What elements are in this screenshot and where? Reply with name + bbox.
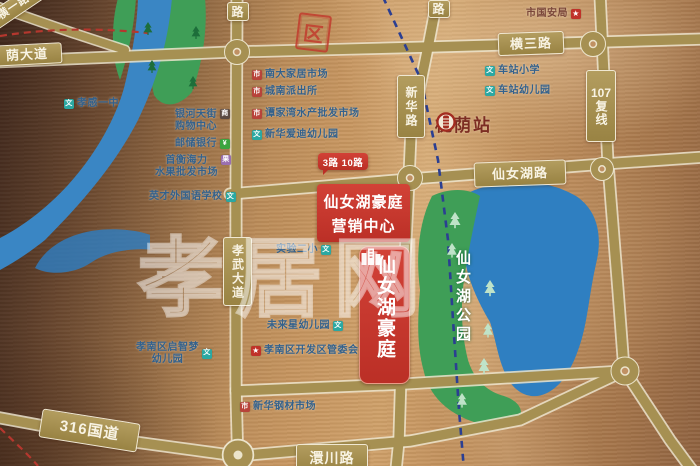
poi-yingcai-school: 英才外国语学校: [149, 191, 236, 203]
road-plate-107-number: 107: [591, 87, 611, 99]
poi-label: 城南派出所: [265, 86, 318, 98]
road-plate-yindadao: 荫大道: [0, 42, 63, 67]
poi-label: 新华钢材市场: [253, 401, 316, 413]
fruit-market-icon: [221, 155, 231, 165]
poi-label: 市国安局: [526, 8, 568, 20]
poi-shuiguo-market: 首衡海力水果批发市场: [155, 155, 231, 178]
poi-label: 谭家湾水产批发市场: [265, 108, 360, 120]
poi-chezhan-kindergarten: 车站幼儿园: [485, 85, 551, 97]
poi-label: 英才外国语学校: [149, 191, 223, 203]
poi-nanda-market: 南大家居市场: [252, 69, 328, 81]
poi-label: 车站幼儿园: [498, 85, 551, 97]
road-plate-lu-left: 路: [227, 2, 249, 21]
market-icon: [252, 70, 262, 80]
poi-label: 孝南区启智梦: [136, 342, 199, 354]
mall-icon: [220, 109, 230, 119]
poi-xiaogan-yizhong: 孝感一中: [64, 98, 119, 110]
road-plate-hengsan: 横三路: [498, 31, 565, 56]
boundary-dashed-red-bottom: [0, 428, 38, 466]
poi-guo-an-ju: 市国安局: [526, 8, 581, 20]
market-icon: [252, 109, 262, 119]
poi-qizhimeng-kindergarten: 孝南区启智梦幼儿园: [136, 342, 212, 365]
poi-label: 孝感一中: [77, 98, 119, 110]
poi-label2: 购物中心: [175, 121, 217, 133]
road-plate-lu-right: 路: [428, 0, 450, 18]
poi-label: 南大家居市场: [265, 69, 328, 81]
road-plate-107: 107 复线: [586, 70, 616, 142]
road-plate-huanchuan: 澴川路: [296, 444, 368, 466]
poi-youchu-bank: 邮储银行: [175, 138, 230, 150]
road-plate-xinhua: 新华路: [397, 75, 425, 138]
school-icon: [226, 192, 236, 202]
watermark-logo-swoosh: [30, 212, 150, 282]
kindergarten-icon: [252, 130, 262, 140]
poi-chengnan-paichusuo: 城南派出所: [252, 86, 318, 98]
road-xiannvhu-lu: [230, 157, 700, 194]
poi-chezhan-primary: 车站小学: [485, 65, 540, 77]
poi-label: 首衡海力: [166, 155, 208, 167]
poi-label: 孝南区开发区管委会: [264, 345, 359, 357]
poi-label: 新华爱迪幼儿园: [265, 129, 339, 141]
huaiyin-station: 槐荫站: [435, 111, 492, 136]
poi-guanweihui: 孝南区开发区管委会: [251, 345, 359, 357]
kindergarten-icon: [202, 349, 212, 359]
government-star-icon: [571, 9, 581, 19]
poi-label2: 幼儿园: [152, 354, 184, 366]
school-icon: [64, 99, 74, 109]
bus-routes-sign: 3路 10路: [318, 153, 368, 170]
poi-yinhe-tianjie: 银河天街购物中心: [175, 109, 230, 132]
railway-station-icon: [435, 111, 457, 133]
watermark-text: 孝居网: [138, 208, 432, 333]
poi-label: 银河天街: [175, 109, 217, 121]
kindergarten-icon: [485, 86, 495, 96]
government-star-icon: [251, 346, 261, 356]
school-icon: [485, 66, 495, 76]
road-plate-107-suffix: 复线: [595, 100, 607, 126]
district-stamp: 区: [295, 12, 332, 53]
road-plate-xiannvhu: 仙女湖路: [474, 159, 567, 187]
park-name: 仙女湖公园: [452, 250, 473, 345]
poi-xinhua-kindergarten: 新华爱迪幼儿园: [252, 129, 339, 141]
bank-icon: [220, 139, 230, 149]
poi-label2: 水果批发市场: [155, 167, 218, 179]
poi-shuichan-market: 谭家湾水产批发市场: [252, 108, 360, 120]
poi-label: 车站小学: [498, 65, 540, 77]
police-icon: [252, 87, 262, 97]
map-board: 横一路 荫大道 路 路 横三路 新华路 107 复线 仙女湖路 孝武大道 316…: [0, 0, 700, 466]
poi-label: 邮储银行: [175, 138, 217, 150]
market-icon: [240, 402, 250, 412]
poi-xinhua-steel-market: 新华钢材市场: [240, 401, 316, 413]
